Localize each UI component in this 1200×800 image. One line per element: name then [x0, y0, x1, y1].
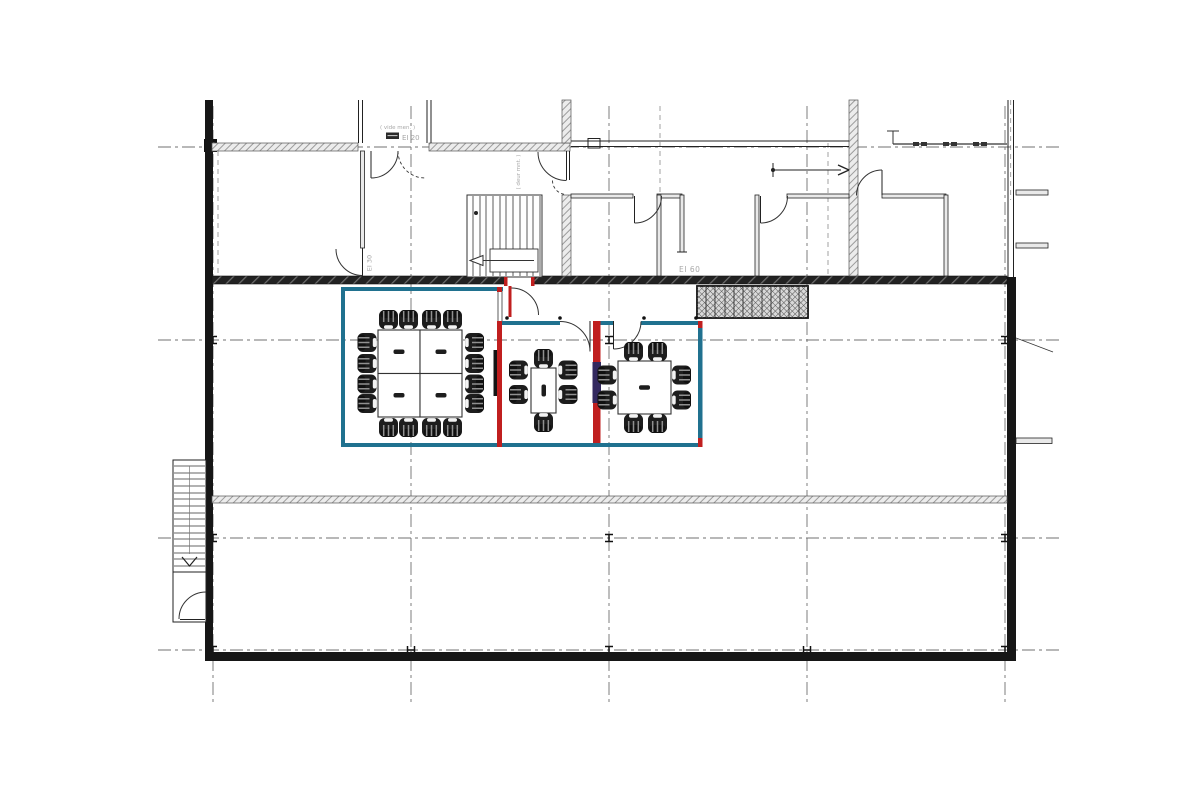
partition-walls: [359, 100, 949, 276]
wall-bottom-exterior: [205, 652, 1016, 661]
chair: [559, 385, 578, 404]
chair: [379, 418, 398, 437]
door-corridor-2: [761, 196, 788, 223]
chair: [465, 354, 484, 373]
chair: [399, 418, 418, 437]
floor-plan-viewer: ( vide men. ) EI 20 ( deur mnt. ) EI 30 …: [0, 0, 1200, 800]
ei60-label: EI 60: [679, 265, 700, 274]
chair: [534, 349, 553, 368]
chair: [648, 342, 667, 361]
chair: [465, 375, 484, 394]
door-main-wall: [504, 277, 539, 317]
door-ei20: [371, 151, 425, 178]
wall-right-exterior: [1007, 277, 1016, 661]
vide-note-label: ( vide men. ): [380, 125, 415, 131]
chair: [358, 375, 377, 394]
stair-main: [467, 195, 542, 277]
floor-plan-canvas: ( vide men. ) EI 20 ( deur mnt. ) EI 30 …: [0, 0, 1200, 800]
chair: [648, 414, 667, 433]
room2-wall-top: [502, 321, 560, 325]
chair: [559, 361, 578, 380]
chair: [465, 333, 484, 352]
chair: [422, 310, 441, 329]
chair: [624, 342, 643, 361]
wall-upper-hatched: [212, 143, 358, 151]
chair: [672, 391, 691, 410]
interior-walls: [212, 100, 1053, 503]
door-top-right-room: [857, 170, 883, 196]
chair: [598, 366, 617, 385]
chair: [399, 310, 418, 329]
wall-lower-hatched: [212, 496, 1007, 503]
chair: [672, 366, 691, 385]
chair: [358, 354, 377, 373]
chair: [443, 418, 462, 437]
chair: [509, 385, 528, 404]
wall-corridor-dark: [212, 276, 505, 284]
room3-wall-top: [601, 321, 614, 325]
column-marker: [605, 535, 613, 542]
chair: [422, 418, 441, 437]
chair: [509, 361, 528, 380]
column-marker: [605, 337, 613, 344]
rooms-wall-bottom: [341, 443, 702, 447]
right-wall-stubs: [1016, 190, 1053, 444]
room1-wall-left: [341, 287, 345, 447]
wall-stair-hatched-top: [562, 100, 571, 143]
room1-wall-top: [341, 287, 503, 291]
hinge-dot: [558, 316, 562, 320]
room3-wall-right: [698, 321, 703, 447]
stair-exterior: [173, 460, 206, 622]
door-leaf-red: [509, 286, 512, 317]
wall-right-hatched: [849, 100, 858, 276]
door-stairwell: [538, 151, 570, 195]
shaft-grille: [697, 286, 808, 318]
hinge-dot: [505, 316, 509, 320]
chair: [358, 394, 377, 413]
door-room2: [560, 321, 590, 352]
hinge-dot: [694, 316, 698, 320]
chair: [358, 333, 377, 352]
chair: [534, 413, 553, 432]
chair: [624, 414, 643, 433]
room2-wall-left: [497, 321, 502, 443]
deur-note-label: ( deur mnt. ): [516, 155, 522, 190]
chair: [379, 310, 398, 329]
door-ei30: [336, 248, 363, 276]
chair: [598, 391, 617, 410]
hinge-dot: [642, 316, 646, 320]
chair: [443, 310, 462, 329]
chair: [465, 394, 484, 413]
ei20-label: EI 20: [402, 134, 420, 142]
window-band: [887, 131, 1007, 146]
ei30-label: EI 30: [366, 255, 374, 271]
wall-stair-hatched: [562, 195, 571, 276]
direction-arrow: [771, 163, 849, 177]
